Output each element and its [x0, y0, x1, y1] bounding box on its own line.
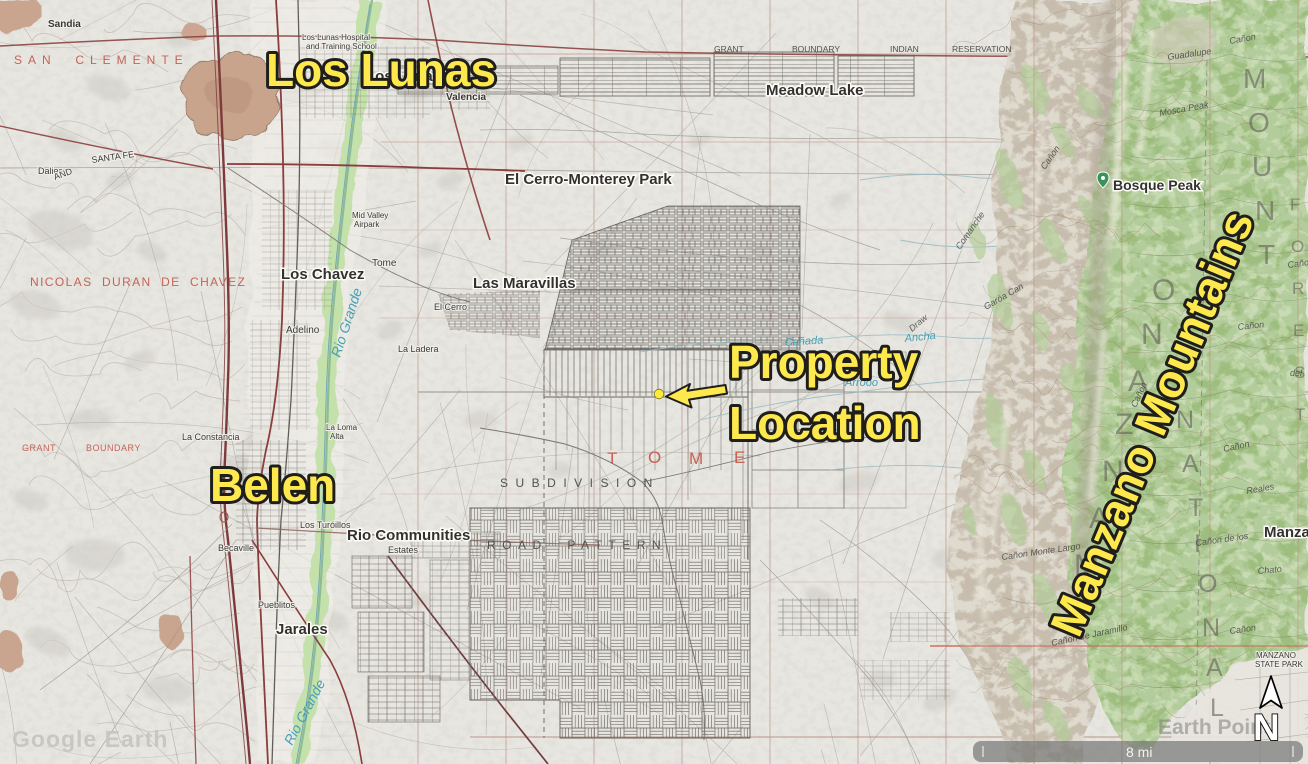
svg-text:8 mi: 8 mi	[1126, 744, 1152, 760]
svg-text:Google Earth: Google Earth	[12, 726, 168, 752]
svg-text:N: N	[1253, 707, 1280, 748]
